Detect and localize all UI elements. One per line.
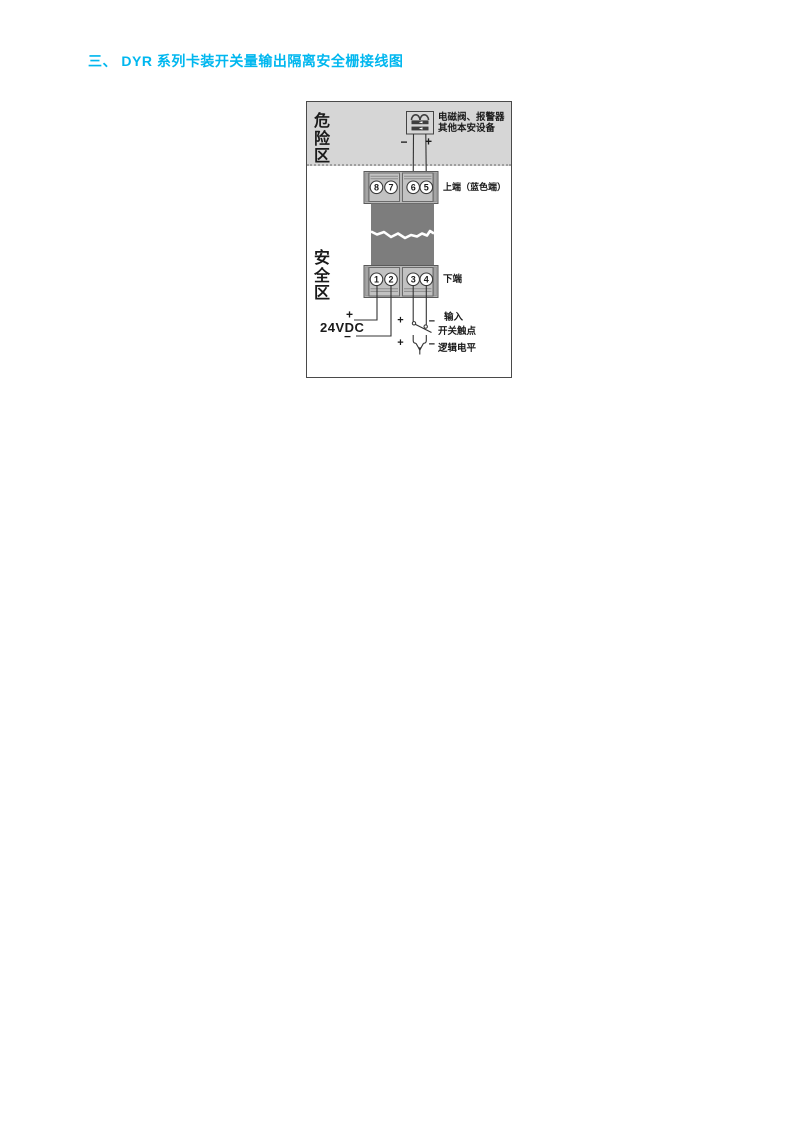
barrier-module-body — [371, 204, 434, 266]
terminal-7: 7 — [385, 181, 398, 194]
terminal-2: 2 — [385, 273, 398, 286]
logic-plus-sign: + — [397, 337, 403, 349]
power-supply-label: 24VDC — [320, 320, 364, 335]
terminal-5: 5 — [420, 181, 433, 194]
svg-text:8: 8 — [374, 183, 379, 193]
svg-text:5: 5 — [424, 183, 429, 193]
terminal-4: 4 — [420, 273, 433, 286]
switch-plus-sign: + — [397, 315, 403, 327]
svg-text:7: 7 — [388, 183, 393, 193]
svg-text:6: 6 — [411, 183, 416, 193]
svg-text:1: 1 — [374, 275, 379, 285]
page-title: 三、 DYR 系列卡装开关量输出隔离安全栅接线图 — [88, 51, 403, 71]
field-device-icon — [407, 112, 434, 135]
device-label: 电磁阀、报警器 其他本安设备 — [438, 112, 505, 134]
top-terminal-block: 8 7 6 5 — [364, 172, 438, 204]
bottom-terminal-block: 1 2 3 4 — [364, 266, 438, 298]
svg-text:2: 2 — [388, 275, 393, 285]
svg-text:4: 4 — [424, 275, 429, 285]
device-plus-sign: + — [425, 134, 432, 148]
terminal-1: 1 — [370, 273, 383, 286]
device-minus-sign: − — [400, 135, 407, 149]
switch-input-label-line1: 输入 — [444, 312, 463, 323]
terminal-6: 6 — [407, 181, 420, 194]
document-page: 三、 DYR 系列卡装开关量输出隔离安全栅接线图 危险区 安全区 − + — [0, 0, 794, 1123]
switch-minus-sign: − — [429, 316, 435, 328]
logic-minus-sign: − — [429, 339, 435, 351]
logic-input-label: 逻辑电平 — [438, 343, 476, 354]
wiring-graphics: − + 8 7 — [307, 102, 511, 377]
logic-level-symbol — [413, 335, 426, 355]
bottom-terminal-label: 下端 — [443, 274, 462, 285]
device-label-line2: 其他本安设备 — [438, 123, 505, 134]
terminal-3: 3 — [407, 273, 420, 286]
top-terminal-label: 上端（蓝色端） — [443, 182, 506, 193]
wiring-diagram: 危险区 安全区 − + — [306, 101, 512, 378]
svg-text:3: 3 — [411, 275, 416, 285]
terminal-8: 8 — [370, 181, 383, 194]
device-label-line1: 电磁阀、报警器 — [438, 112, 505, 123]
switch-input-label-line2: 开关触点 — [438, 326, 476, 337]
